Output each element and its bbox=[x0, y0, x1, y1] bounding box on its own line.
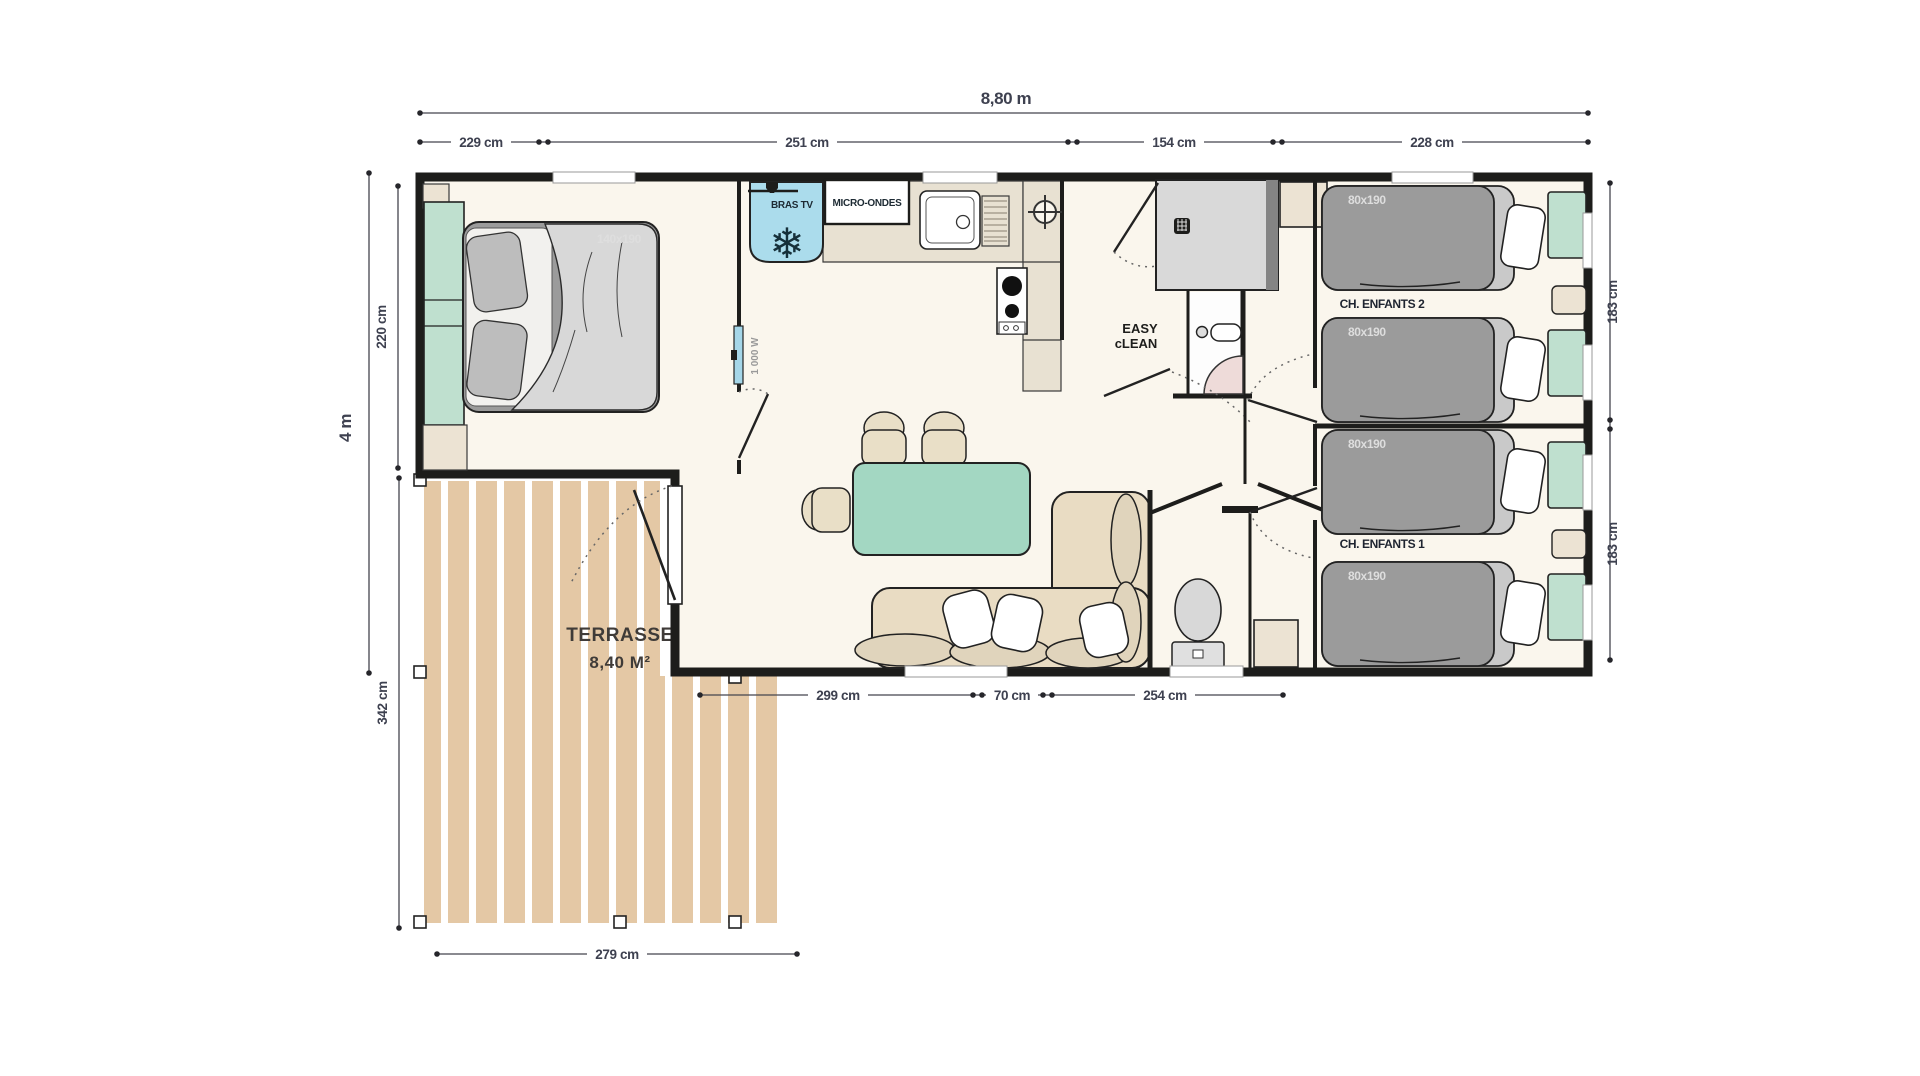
terrace-area-label: 8,40 M² bbox=[589, 653, 650, 672]
shower bbox=[1156, 180, 1278, 290]
pillow bbox=[466, 319, 529, 401]
dim-top-seg: 251 cm bbox=[785, 135, 829, 150]
wc-cabinet bbox=[1254, 620, 1298, 667]
dim-bedroom-height: 220 cm bbox=[374, 305, 389, 349]
tap-icon bbox=[1197, 327, 1208, 338]
shower-drain-icon bbox=[1174, 218, 1190, 234]
drainboard bbox=[982, 196, 1009, 246]
single-bed-size: 80x190 bbox=[1348, 437, 1386, 451]
dim-bottom-seg: 299 cm bbox=[816, 688, 860, 703]
dining-table bbox=[853, 463, 1030, 555]
heater-bracket bbox=[731, 350, 737, 360]
heater-power-label: 1 000 W bbox=[750, 337, 761, 375]
kids-shelf bbox=[1552, 530, 1586, 558]
double-bed-size: 140x190 bbox=[597, 232, 642, 246]
wardrobe bbox=[424, 202, 464, 425]
toilet bbox=[1172, 579, 1224, 668]
single-bed-size: 80x190 bbox=[1348, 325, 1386, 339]
dim-total-height: 4 m bbox=[336, 414, 355, 442]
bedroom-cabinet bbox=[423, 425, 467, 470]
bathroom-shelf bbox=[1280, 182, 1327, 227]
double-bed: 140x190 bbox=[463, 222, 659, 412]
dim-top-seg: 229 cm bbox=[459, 135, 503, 150]
dim-top-seg: 154 cm bbox=[1152, 135, 1196, 150]
terrace-planks-right bbox=[660, 676, 784, 923]
floor-plan-svg: TERRASSE 8,40 M² 140x190 1 000 W bbox=[0, 0, 1920, 1076]
single-bed-size: 80x190 bbox=[1348, 193, 1386, 207]
dim-right-seg: 183 cm bbox=[1605, 280, 1620, 324]
dim-right-seg: 183 cm bbox=[1605, 522, 1620, 566]
dim-terrace-height: 342 cm bbox=[375, 681, 390, 725]
dim-top-seg: 228 cm bbox=[1410, 135, 1454, 150]
brand-clean: cLEAN bbox=[1115, 336, 1158, 351]
kids-room-1-label: CH. ENFANTS 1 bbox=[1340, 537, 1426, 551]
snowflake-icon: ❄ bbox=[769, 220, 804, 267]
sink bbox=[920, 191, 1009, 249]
cooktop bbox=[997, 268, 1027, 334]
tv-bracket-label: BRAS TV bbox=[771, 200, 813, 211]
kids-room-2-label: CH. ENFANTS 2 bbox=[1340, 297, 1426, 311]
single-bed-size: 80x190 bbox=[1348, 569, 1386, 583]
microwave-label: MICRO-ONDES bbox=[833, 198, 903, 209]
dim-total-width: 8,80 m bbox=[981, 89, 1032, 108]
floor-plan-page: TERRASSE 8,40 M² 140x190 1 000 W bbox=[0, 0, 1920, 1076]
shower-wall-strip bbox=[1266, 180, 1278, 290]
terrace-planks-main bbox=[424, 481, 660, 923]
washbasin bbox=[1211, 324, 1241, 341]
brand-easy: EASY bbox=[1122, 321, 1158, 336]
dim-terrace-width: 279 cm bbox=[595, 947, 639, 962]
kids-shelf bbox=[1552, 286, 1586, 314]
pillow bbox=[465, 231, 529, 314]
dim-bottom-seg: 254 cm bbox=[1143, 688, 1187, 703]
dim-bottom-seg: 70 cm bbox=[994, 688, 1031, 703]
terrace-label: TERRASSE bbox=[566, 625, 673, 646]
